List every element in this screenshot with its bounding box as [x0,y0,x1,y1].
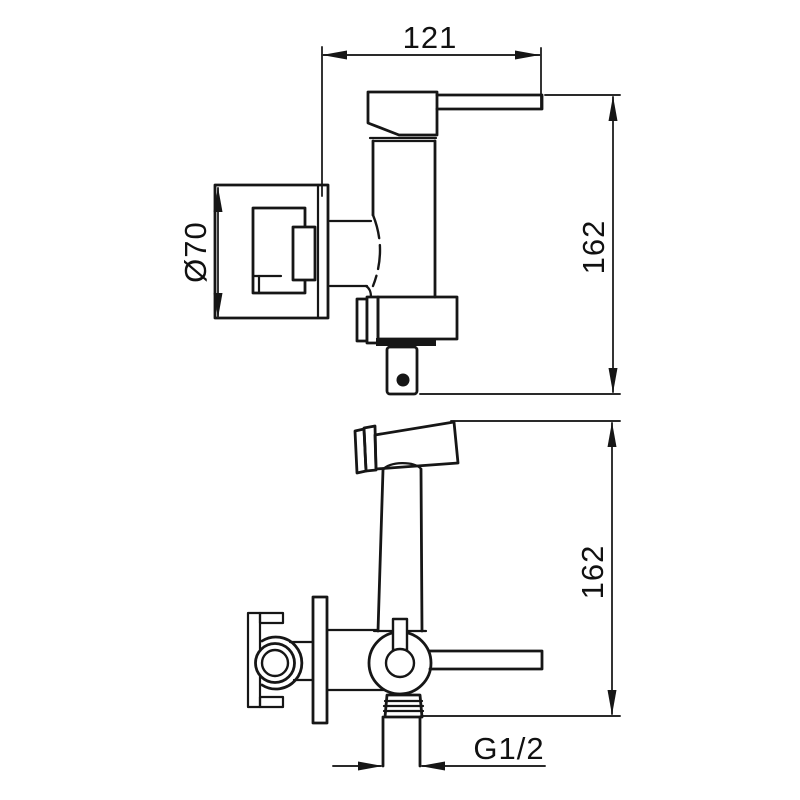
holder-pin-hole [397,374,410,387]
dim-162u-label: 162 [576,220,611,275]
dim-g12-label: G1/2 [473,731,544,766]
outlet-end-cap-outer [357,299,367,341]
holder-ring-inner [262,650,288,676]
valve-stem [393,619,407,650]
dim-g12-arrow-right [420,762,445,771]
upper-view: 121 162 [178,20,620,394]
drawing-canvas: 121 162 [0,0,800,800]
dim-121-arrow-left [322,51,347,60]
dim-g12-arrow-left [358,762,383,771]
bracket-tab [293,227,315,280]
ball-joint-hidden-arc [373,215,380,286]
handle-lever [437,95,542,109]
outlet-end-cap-inner [367,297,378,343]
sprayer-grip-right [421,469,422,631]
dimension-162-upper: 162 [420,95,620,394]
dim-121-label: 121 [403,20,458,55]
dim-d70-label: Ø70 [178,221,213,283]
outlet-and-holder [357,297,457,394]
dim-121-arrow-right [515,51,540,60]
cartridge-cap [368,92,437,135]
valve-ball-core [386,649,414,677]
dim-162l-arrow-bottom [608,690,617,715]
outlet-block [378,297,457,339]
dim-162l-label: 162 [575,545,610,600]
holder-socket [387,347,417,394]
wall-plate-side [248,597,327,723]
dim-162u-arrow-bottom [609,368,618,393]
dim-162l-arrow-top [608,422,617,447]
hand-sprayer [355,422,458,631]
dim-162u-arrow-top [609,96,618,121]
wall-plate-front [215,185,328,318]
holder-bracket-arm-bottom [260,697,283,707]
mixer-body [330,92,542,297]
sprayer-head [375,422,458,469]
lower-view: 162 [248,421,620,771]
sprayer-grip-left [378,470,383,631]
valve-lever [429,651,542,669]
holder-bracket-arm-top [260,613,283,623]
outlet-seam-band [376,338,436,346]
body-left-lower-step [366,286,371,297]
technical-drawing-page: 121 162 [0,0,800,800]
dimension-g12: G1/2 [333,731,545,771]
wall-plate-side-band [313,597,327,723]
dimension-162-lower: 162 [421,421,620,716]
